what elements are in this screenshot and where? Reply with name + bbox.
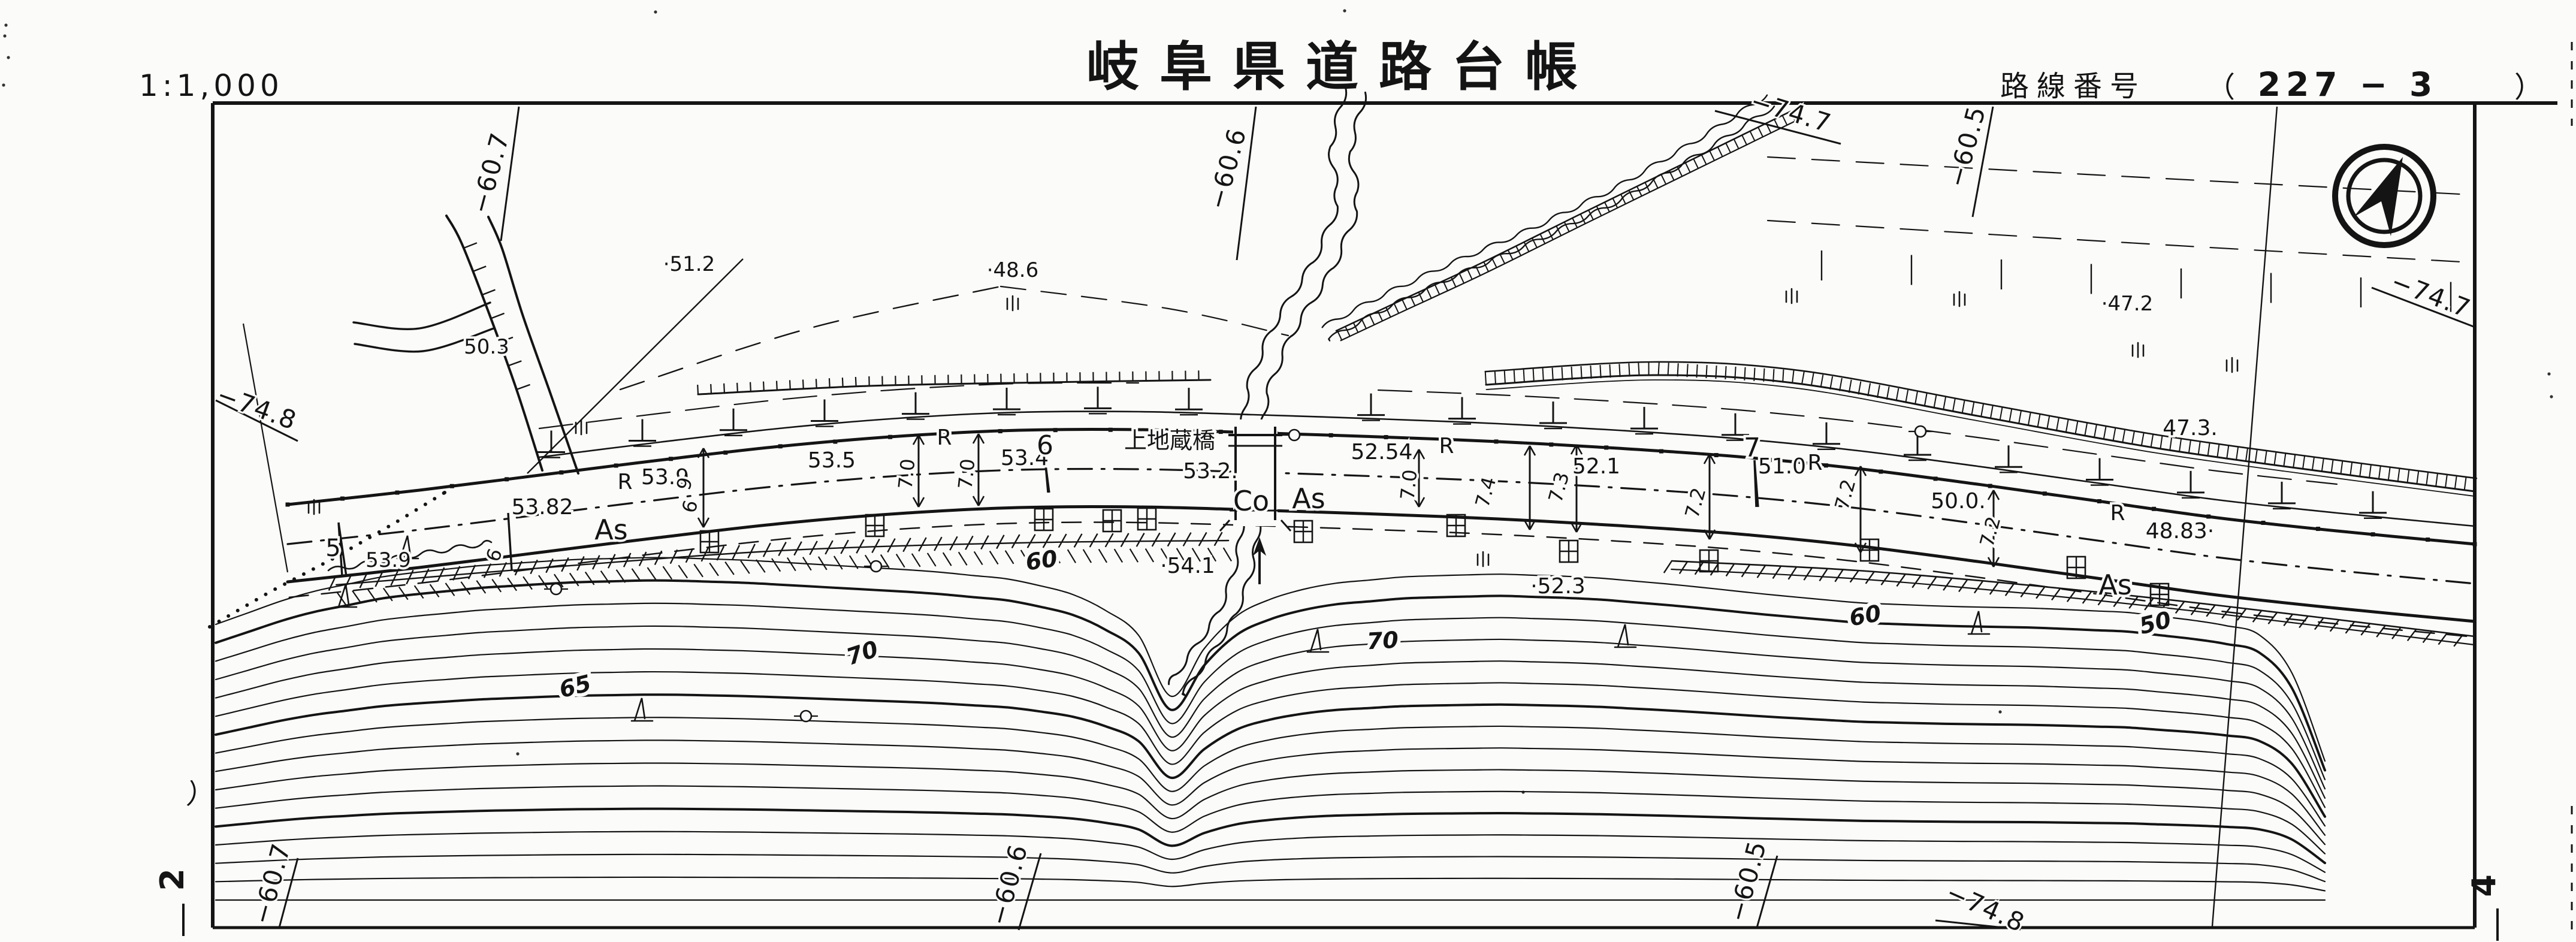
- map-label: 50.3: [464, 335, 509, 359]
- map-line: [829, 378, 830, 388]
- map-line: [1804, 568, 1812, 580]
- map-line: [678, 565, 687, 578]
- map-line: [1990, 582, 1998, 594]
- map-line: [1758, 127, 1763, 137]
- trail-dot: [227, 614, 230, 618]
- map-line: [1726, 564, 1734, 576]
- map-line: [1850, 570, 1859, 582]
- edge-dot: [1934, 476, 1938, 481]
- map-line: [624, 553, 630, 567]
- trail-dot: [415, 508, 418, 512]
- map-line: [1199, 532, 1207, 546]
- map-line: [1505, 370, 1505, 384]
- map-line: [663, 566, 672, 579]
- map-line: [1789, 567, 1796, 579]
- edge-dot: [614, 463, 618, 467]
- scan-speckle: [2547, 372, 2550, 375]
- map-label: 53.5: [808, 448, 856, 473]
- pole-icon: [1915, 426, 1926, 437]
- scan-speckle: [3, 34, 6, 37]
- map-line: [608, 554, 615, 568]
- edge-dot: [888, 435, 892, 439]
- map-path: [1001, 286, 1288, 336]
- map-path: [1671, 569, 2474, 645]
- map-line: [1215, 532, 1222, 546]
- map-line: [725, 562, 734, 575]
- map-line: [508, 361, 522, 366]
- map-line: [2388, 467, 2390, 480]
- map-line: [959, 552, 967, 565]
- route-number-value: 227 − 3: [2258, 65, 2438, 104]
- map-line: [2206, 605, 2215, 617]
- map-line: [1959, 580, 1967, 592]
- map-line: [2189, 440, 2191, 453]
- map-line: [1896, 575, 1905, 587]
- map-path: [216, 877, 2325, 891]
- edge-dot: [286, 503, 290, 507]
- pavement-type-label: Co: [1233, 485, 1269, 517]
- map-label: 7.2: [1680, 485, 1710, 521]
- map-line: [1638, 363, 1639, 376]
- map-label: 53.9: [366, 548, 411, 572]
- contour-label: 60: [1847, 600, 1883, 632]
- map-line: [1668, 363, 1669, 376]
- map-line: [1744, 367, 1745, 381]
- map-line: [1370, 315, 1375, 325]
- edge-dot: [1219, 430, 1223, 434]
- trail-dot: [378, 530, 381, 534]
- grid-coordinate-label: −74.7: [2387, 267, 2475, 324]
- map-line: [2236, 446, 2238, 460]
- map-line: [2299, 616, 2308, 627]
- map-line: [1925, 393, 1927, 406]
- map-line: [1773, 369, 1774, 382]
- map-line: [671, 549, 677, 563]
- map-line: [903, 538, 910, 552]
- trail-dot: [245, 603, 249, 607]
- map-line: [2021, 585, 2029, 597]
- map-line: [1146, 549, 1153, 562]
- scan-speckle: [1998, 710, 2001, 713]
- map-line: [1028, 535, 1035, 548]
- map-line: [2275, 452, 2276, 465]
- pavement-type-label: As: [1292, 482, 1325, 515]
- map-line: [2066, 419, 2068, 432]
- map-label: 6: [481, 545, 507, 564]
- map-line: [1696, 364, 1697, 378]
- edge-dot: [2473, 542, 2477, 547]
- map-line: [777, 381, 777, 391]
- map-line: [733, 545, 739, 559]
- edge-dot: [1824, 463, 1828, 467]
- edge-dot: [998, 429, 1002, 433]
- map-line: [1168, 533, 1176, 547]
- header: 1:1,000 岐阜県道路台帳 路線番号 （ 227 − 3 ）: [139, 36, 2551, 104]
- edge-dot: [1053, 428, 1058, 432]
- map-line: [1524, 369, 1524, 382]
- map-line: [1792, 370, 1793, 384]
- map-line: [1581, 366, 1581, 379]
- edge-dot: [340, 497, 345, 501]
- map-line: [772, 558, 780, 572]
- contour-label: 70: [843, 636, 881, 671]
- map-line: [1726, 143, 1731, 153]
- scan-speckle: [7, 56, 10, 59]
- map-path: [354, 303, 490, 329]
- map-label: 7.0: [1396, 469, 1422, 502]
- edge-dot: [2316, 527, 2320, 531]
- map-line: [1706, 365, 1707, 378]
- map-line: [2237, 609, 2246, 620]
- map-line: [243, 324, 288, 572]
- map-label: ·54.1: [1160, 554, 1215, 578]
- map-line: [2212, 107, 2277, 926]
- map-line: [539, 575, 548, 588]
- map-line: [2176, 602, 2184, 613]
- map-label: 6: [677, 497, 702, 515]
- map-line: [724, 384, 724, 393]
- map-line: [1840, 378, 1842, 391]
- pavement-type-label: As: [594, 514, 627, 546]
- map-line: [1467, 270, 1472, 279]
- map-line: [819, 557, 827, 570]
- trail-dot: [349, 547, 353, 550]
- map-line: [1224, 548, 1231, 561]
- map-label: R: [937, 425, 952, 450]
- edge-dot: [2426, 538, 2430, 542]
- trail-dot: [424, 503, 427, 506]
- map-line: [1074, 534, 1082, 548]
- map-line: [2284, 614, 2293, 626]
- map-line: [1896, 388, 1898, 401]
- map-line: [2369, 464, 2371, 478]
- trail-dot: [359, 541, 363, 545]
- map-label: 53.2.: [1183, 459, 1238, 484]
- map-line: [517, 385, 530, 390]
- map-line: [856, 539, 863, 553]
- map-line: [2293, 454, 2295, 467]
- map-line: [2036, 587, 2045, 598]
- map-line: [2028, 412, 2031, 425]
- map-path: [1007, 296, 1018, 310]
- map-line: [1514, 370, 1515, 383]
- map-line: [763, 543, 771, 557]
- trail-dot: [433, 497, 436, 500]
- map-label: R: [1807, 451, 1822, 475]
- map-label: R: [617, 470, 632, 494]
- map-linework: ·51.2·48.650.353.82R53.9966553.953.57.07…: [2, 9, 2572, 941]
- trail-dot: [386, 525, 390, 529]
- map-line: [2094, 424, 2097, 437]
- map-line: [1718, 147, 1723, 156]
- map-line: [1710, 151, 1714, 161]
- map-line: [1500, 254, 1505, 264]
- map-line: [399, 587, 408, 599]
- map-line: [856, 377, 856, 387]
- trail-dot: [208, 625, 212, 629]
- map-line: [1012, 535, 1020, 548]
- map-line: [1121, 533, 1129, 547]
- map-line: [686, 548, 693, 562]
- map-line: [2455, 476, 2457, 489]
- map-line: [1183, 533, 1191, 547]
- map-line: [1485, 372, 1486, 385]
- map-line: [2145, 599, 2153, 610]
- grid-coordinate-label: −60.6: [983, 841, 1033, 929]
- map-path: [1322, 95, 1767, 328]
- map-label: ·52.3: [1530, 574, 1586, 599]
- trail-dot: [255, 598, 258, 602]
- map-line: [834, 556, 842, 569]
- map-line: [1661, 174, 1666, 184]
- edge-dot: [505, 477, 509, 481]
- map-line: [648, 567, 657, 580]
- map-line: [2038, 413, 2040, 427]
- map-line: [1659, 362, 1659, 375]
- map-line: [1877, 385, 1880, 398]
- map-line: [1068, 549, 1076, 563]
- route-paren-close: ）: [2514, 71, 2551, 104]
- edge-dot: [1879, 470, 1883, 474]
- map-line: [928, 553, 936, 566]
- grid-coordinate-label: −60.7: [465, 129, 515, 217]
- map-line: [2052, 588, 2060, 600]
- map-label: R: [2110, 501, 2125, 526]
- map-line: [1725, 366, 1726, 379]
- map-line: [934, 537, 941, 551]
- map-label: 7.3: [1544, 470, 1574, 505]
- edge-dot: [2043, 491, 2047, 496]
- map-path: [1954, 292, 1965, 306]
- map-line: [981, 536, 988, 549]
- map-line: [2009, 409, 2012, 422]
- contour-label: 65: [557, 670, 594, 703]
- map-label: 47.3.: [2163, 416, 2218, 440]
- map-line: [1835, 570, 1843, 582]
- pavement-type-label: As: [2098, 569, 2131, 601]
- grid-coordinate-label: −60.7: [246, 840, 296, 928]
- map-line: [872, 539, 879, 553]
- edge-dot: [2206, 515, 2210, 519]
- map-label: 7.2: [1830, 477, 1860, 512]
- map-line: [2269, 612, 2278, 624]
- paddy-field-icon: [1035, 509, 1053, 530]
- map-line: [2255, 449, 2257, 462]
- map-line: [2104, 425, 2106, 439]
- map-path: [1786, 289, 1797, 303]
- map-label: 52.54: [1351, 440, 1412, 464]
- map-line: [1533, 369, 1534, 382]
- map-line: [803, 379, 804, 389]
- map-line: [2056, 417, 2059, 430]
- map-label: ·47.2: [2101, 292, 2154, 316]
- map-line: [1783, 370, 1783, 383]
- map-line: [1763, 369, 1764, 382]
- scan-speckle: [4, 23, 7, 26]
- edge-dot: [1384, 435, 1388, 439]
- pole-icon: [871, 561, 881, 572]
- edge-dot: [833, 440, 837, 444]
- bridge-name-label: 上地蔵橋: [1124, 427, 1215, 454]
- map-line: [2426, 472, 2428, 485]
- scan-speckle: [2550, 395, 2553, 398]
- grid-coordinate-label: −60.5: [1941, 102, 1991, 191]
- map-line: [2330, 620, 2339, 632]
- map-line: [2019, 410, 2021, 424]
- map-line: [1819, 569, 1827, 581]
- map-line: [1677, 363, 1678, 376]
- map-path: [698, 380, 1210, 394]
- paddy-field-icon: [1560, 541, 1578, 562]
- page-title: 岐阜県道路台帳: [1086, 36, 1598, 98]
- map-line: [996, 535, 1004, 549]
- map-line: [1716, 366, 1716, 379]
- map-line: [2067, 590, 2076, 602]
- map-line: [711, 384, 711, 394]
- map-line: [1099, 549, 1107, 562]
- map-line: [896, 554, 905, 567]
- map-line: [1553, 368, 1553, 381]
- map-line: [1887, 387, 1889, 400]
- map-line: [750, 382, 751, 392]
- map-path: [216, 832, 2325, 872]
- map-line: [787, 558, 796, 571]
- map-line: [1059, 534, 1067, 548]
- map-line: [2315, 618, 2324, 629]
- map-line: [1427, 288, 1432, 298]
- map-label: 52.1: [1572, 454, 1620, 479]
- map-line: [1695, 563, 1703, 575]
- map-line: [1680, 561, 1687, 573]
- scan-speckle: [654, 10, 657, 13]
- map-line: [2246, 448, 2248, 461]
- map-path: [576, 420, 587, 434]
- map-line: [1915, 392, 1917, 405]
- map-line: [816, 379, 817, 388]
- map-line: [887, 539, 895, 552]
- map-line: [2208, 442, 2210, 455]
- edge-dot: [1549, 442, 1553, 446]
- road-ledger-sheet: 1:1,000 岐阜県道路台帳 路線番号 （ 227 − 3 ） 2 4 ） ·…: [0, 0, 2576, 942]
- map-line: [1083, 549, 1091, 563]
- map-line: [2332, 460, 2333, 473]
- contour-label: 50: [2137, 606, 2174, 639]
- edge-dot: [723, 451, 727, 455]
- map-line: [1543, 369, 1544, 382]
- map-line: [482, 290, 495, 295]
- paddy-field-icon: [1103, 510, 1121, 532]
- map-label: ·51.2: [663, 252, 715, 276]
- map-line: [950, 536, 957, 550]
- map-line: [912, 554, 920, 567]
- map-line: [1435, 285, 1440, 294]
- edge-dot: [395, 491, 399, 495]
- map-line: [1882, 573, 1890, 585]
- map-label: R: [1439, 434, 1454, 458]
- map-line: [1508, 250, 1513, 259]
- map-line: [1130, 549, 1138, 562]
- map-line: [2312, 457, 2314, 470]
- map-line: [1934, 395, 1936, 408]
- map-label: 7.2: [1975, 514, 2005, 549]
- map-line: [2132, 431, 2134, 444]
- edge-dot: [669, 457, 673, 461]
- map-label: 7.0: [894, 458, 920, 491]
- map-line: [473, 266, 486, 271]
- map-line: [1572, 367, 1572, 380]
- map-line: [2360, 463, 2361, 476]
- map-line: [1905, 390, 1908, 403]
- map-path: [2227, 358, 2237, 372]
- map-line: [1609, 364, 1610, 378]
- map-line: [697, 385, 698, 394]
- map-line: [1734, 139, 1739, 149]
- map-line: [1345, 327, 1350, 336]
- map-line: [2160, 436, 2162, 449]
- map-line: [639, 552, 646, 566]
- map-line: [2122, 429, 2125, 442]
- map-line: [2361, 624, 2370, 635]
- map-line: [1106, 533, 1113, 547]
- map-line: [2085, 422, 2087, 436]
- edge-dot: [1604, 445, 1608, 449]
- map-line: [2408, 629, 2417, 641]
- map-line: [1750, 131, 1755, 141]
- map-line: [2076, 421, 2078, 434]
- map-label: 50.0.: [1931, 489, 1986, 514]
- map-line: [2083, 592, 2091, 603]
- pole-icon: [1289, 430, 1300, 440]
- map-line: [1943, 579, 1952, 591]
- map-line: [523, 576, 532, 589]
- scan-speckle: [516, 752, 519, 755]
- map-line: [1005, 551, 1014, 564]
- map-path: [1341, 121, 1795, 340]
- map-line: [1562, 367, 1563, 381]
- map-line: [1742, 135, 1747, 144]
- trail-dot: [321, 562, 325, 566]
- north-arrow-icon: [2335, 147, 2433, 245]
- map-line: [2284, 453, 2285, 466]
- map-path: [1241, 87, 1346, 429]
- map-line: [415, 585, 424, 598]
- map-path: [1478, 552, 1488, 566]
- edge-dot: [559, 470, 563, 475]
- map-path: [539, 383, 1138, 428]
- map-line: [974, 551, 983, 564]
- map-line: [508, 578, 517, 590]
- edge-dot: [1659, 449, 1663, 454]
- map-line: [2303, 455, 2305, 469]
- map-line: [2047, 415, 2049, 428]
- map-line: [1981, 403, 1983, 416]
- trail-dot: [283, 582, 286, 586]
- edge-dot: [2152, 507, 2156, 511]
- edge-dot: [778, 444, 783, 448]
- map-line: [794, 542, 801, 555]
- map-path: [1485, 362, 2477, 478]
- trail-dot: [302, 572, 306, 576]
- scan-speckle: [2, 83, 5, 86]
- map-line: [1394, 304, 1399, 313]
- map-line: [709, 563, 718, 575]
- map-line: [741, 561, 750, 573]
- map-line: [1811, 373, 1814, 386]
- map-line: [694, 564, 703, 576]
- map-line: [1590, 366, 1591, 379]
- paddy-field-icon: [1861, 539, 1879, 561]
- trail-dot: [264, 593, 267, 596]
